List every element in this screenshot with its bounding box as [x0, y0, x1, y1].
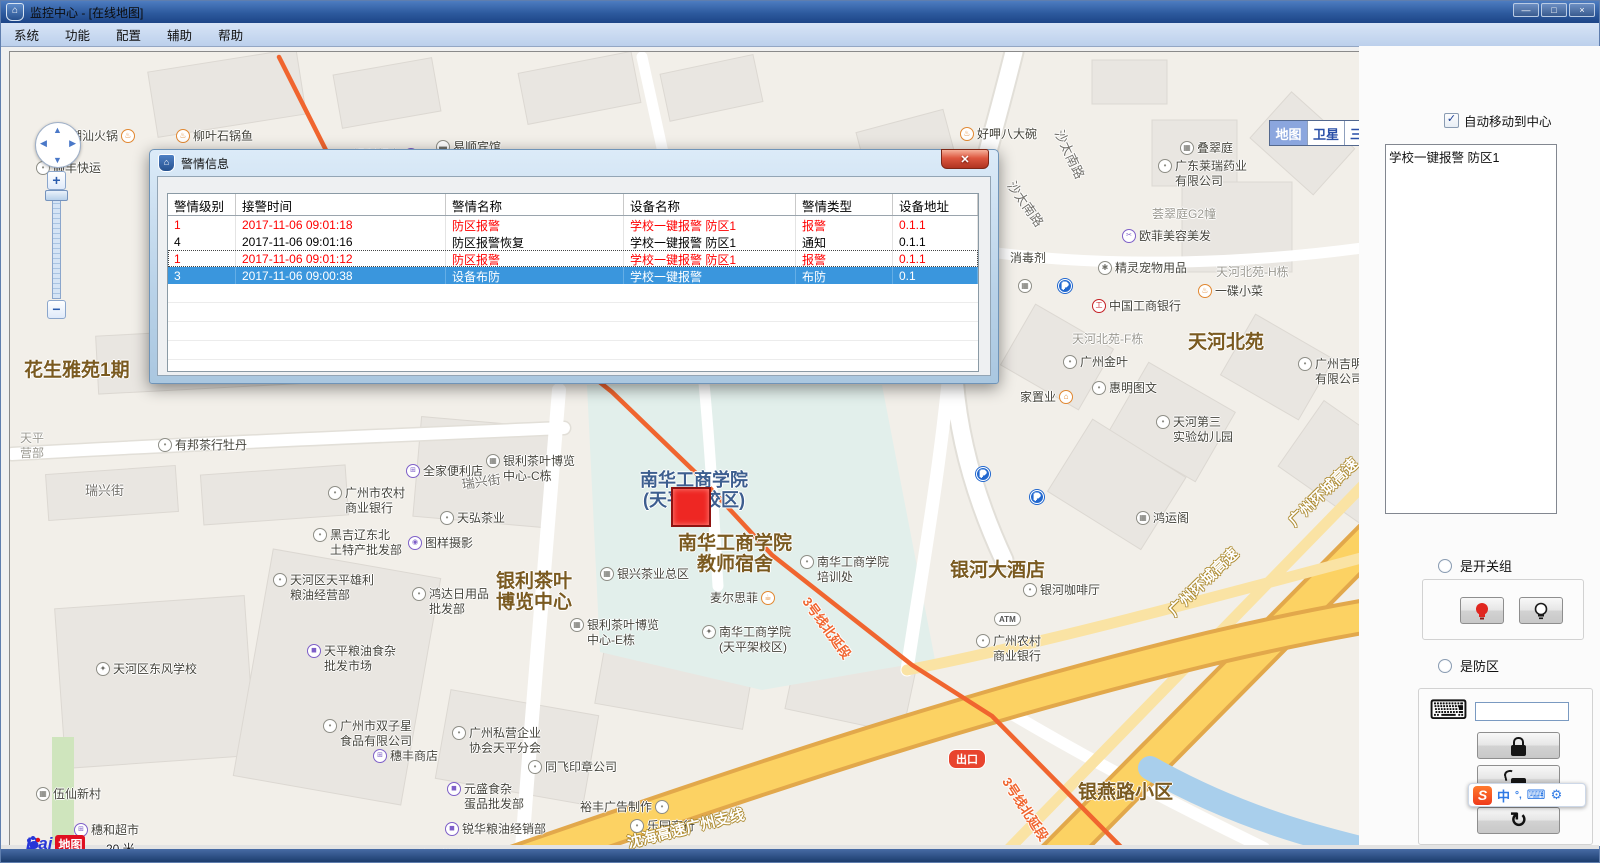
- map-label-text: 广州金叶: [1080, 355, 1128, 370]
- dot-poi-icon: •: [1063, 355, 1077, 369]
- table-empty-row: [168, 341, 978, 360]
- app-window: ⌂ 监控中心 - [在线地图] — □ × 系统功能配置辅助帮助: [0, 0, 1600, 863]
- pan-up-icon[interactable]: ▲: [53, 125, 62, 135]
- map-label-text: 南华工商学院培训处: [817, 555, 889, 585]
- bag-poi-icon: ◼: [445, 822, 459, 836]
- dialog-titlebar[interactable]: ⌂ 警情信息: [150, 150, 998, 176]
- table-cell: 通知: [796, 233, 893, 250]
- ime-keyboard-icon[interactable]: ⌨: [1527, 787, 1546, 803]
- bld-poi-icon: ▦: [1180, 141, 1194, 155]
- map-label-text: 广州市双子星食品有限公司: [340, 719, 412, 749]
- map-label-text: 天平粮油食杂批发市场: [324, 644, 396, 674]
- alarm-table[interactable]: 警情级别接警时间警情名称设备名称警情类型设备地址12017-11-06 09:0…: [167, 193, 979, 372]
- map-label: ▦银兴茶业总区: [600, 567, 689, 582]
- zone-label: 是防区: [1460, 656, 1499, 675]
- map-label: •同飞印章公司: [528, 760, 617, 775]
- map-label-text: 鸿达日用品批发部: [429, 587, 489, 617]
- map-label: •有邦茶行牡丹: [158, 438, 247, 453]
- alarm-info-dialog: ⌂ 警情信息 ✕ 警情级别接警时间警情名称设备名称警情类型设备地址12017-1…: [149, 149, 999, 384]
- table-empty-row: [168, 303, 978, 322]
- map-label-text: 天平营部: [20, 431, 44, 461]
- map-label: 瑞兴街: [85, 483, 124, 499]
- map-label-text: 银利茶叶博览中心: [496, 572, 572, 614]
- dot-poi-icon: •: [412, 587, 426, 601]
- cart-poi-icon: ⊞: [373, 749, 387, 763]
- camera-poi-icon: ◉: [408, 536, 422, 550]
- ime-punct-toggle[interactable]: °,: [1515, 790, 1522, 801]
- window-title: 监控中心 - [在线地图]: [30, 4, 143, 21]
- map-label: 消毒剂: [1010, 251, 1046, 266]
- dialog-title: 警情信息: [181, 155, 229, 172]
- bag-poi-icon: ◼: [447, 782, 461, 796]
- map-label: ♨一碟小菜: [1198, 284, 1263, 299]
- map-label-text: 惠明图文: [1109, 381, 1157, 396]
- map-poi-icon: P: [1058, 279, 1072, 293]
- reset-button[interactable]: ↻: [1477, 807, 1560, 834]
- map-label: •广州农村商业银行: [976, 634, 1041, 664]
- map-label-text: 广州市农村商业银行: [345, 486, 405, 516]
- map-label: ⊞全家便利店: [406, 464, 483, 479]
- map-label-text: 天河区天平雄利粮油经营部: [290, 573, 374, 603]
- dot-poi-icon: •: [528, 760, 542, 774]
- dot-poi-icon: •: [158, 438, 172, 452]
- map-label: •黑吉辽东北土特产批发部: [313, 528, 402, 558]
- reset-icon: ↻: [1510, 812, 1528, 830]
- map-label-text: 瑞兴街: [85, 483, 124, 499]
- map-label: •广州私营企业协会天平分会: [452, 726, 541, 756]
- map-label: 南华工商学院教师宿舍: [678, 534, 792, 576]
- table-cell: 2017-11-06 09:01:12: [236, 250, 446, 267]
- light-off-button[interactable]: [1519, 597, 1563, 624]
- map-label-text: 银河大酒店: [950, 561, 1045, 582]
- map-label: ▦伍仙新村: [36, 787, 101, 802]
- dialog-close-button[interactable]: ✕: [941, 149, 989, 169]
- map-label-text: 消毒剂: [1010, 251, 1046, 266]
- map-label-text: 广州吉明电子科技有限公司: [1315, 357, 1360, 387]
- map-label-text: 伍仙新村: [53, 787, 101, 802]
- alarm-location-marker[interactable]: [671, 487, 711, 527]
- map-label-text: 穗丰商店: [390, 749, 438, 764]
- map-label: ✂欧菲美容美发: [1122, 229, 1211, 244]
- baidu-paw-icon: [26, 834, 42, 850]
- menu-item-功能[interactable]: 功能: [52, 22, 103, 47]
- map-label-text: 天河北苑-H栋: [1216, 265, 1289, 280]
- map-label: •广州市双子星食品有限公司: [323, 719, 412, 749]
- map-label: •南华工商学院培训处: [800, 555, 889, 585]
- map-label-text: 花生雅苑1期: [24, 361, 130, 382]
- soft-keyboard-icon[interactable]: ⌨: [1429, 695, 1468, 726]
- p-poi-icon: P: [1058, 279, 1072, 293]
- device-list-item[interactable]: 学校一键报警 防区1: [1386, 145, 1556, 168]
- map-poi-icon: ▦: [1018, 279, 1032, 293]
- menu-item-配置[interactable]: 配置: [103, 22, 154, 47]
- outline-bulb-icon: [1532, 601, 1550, 621]
- zoom-slider-track[interactable]: [52, 193, 61, 299]
- p-poi-icon: P: [976, 467, 990, 481]
- column-header-警情级别: 警情级别: [168, 194, 236, 215]
- dot-poi-icon: •: [440, 511, 454, 525]
- bld-poi-icon: ▦: [36, 787, 50, 801]
- map-label: •广州市农村商业银行: [328, 486, 405, 516]
- table-cell: 防区报警恢复: [446, 233, 624, 250]
- window-titlebar[interactable]: ⌂ 监控中心 - [在线地图] — □ ×: [1, 1, 1599, 23]
- table-cell: 0.1.1: [893, 216, 978, 233]
- dot-poi-icon: •: [273, 573, 287, 587]
- cut-poi-icon: ✂: [1122, 229, 1136, 243]
- table-cell: 3: [168, 267, 236, 284]
- zoom-in-button[interactable]: +: [47, 171, 66, 190]
- map-label: •广州吉明电子科技有限公司: [1298, 357, 1360, 387]
- table-empty-row: [168, 322, 978, 341]
- table-empty-row: [168, 360, 978, 372]
- map-label-text: 图样摄影: [425, 536, 473, 551]
- map-label-text: 银利茶叶博览中心-E栋: [587, 618, 659, 648]
- map-label: •天河区天平雄利粮油经营部: [273, 573, 374, 603]
- map-label-text: 中国工商银行: [1109, 299, 1181, 314]
- dialog-shield-icon: ⌂: [158, 154, 175, 172]
- bld-poi-icon: ▦: [600, 567, 614, 581]
- table-cell: 布防: [796, 267, 893, 284]
- table-cell: 2017-11-06 09:01:18: [236, 216, 446, 233]
- map-label-text: 广州私营企业协会天平分会: [469, 726, 541, 756]
- lock-icon: [1511, 745, 1526, 756]
- icbc-poi-icon: 工: [1092, 299, 1106, 313]
- bld-poi-icon: ▦: [570, 618, 584, 632]
- zoom-out-button[interactable]: −: [47, 300, 66, 319]
- cart-poi-icon: ⊞: [406, 464, 420, 478]
- map-label-text: 有邦茶行牡丹: [175, 438, 247, 453]
- table-cell: 学校一键报警 防区1: [624, 233, 796, 250]
- bld-poi-icon: ▦: [1018, 279, 1032, 293]
- map-label-text: 欧菲美容美发: [1139, 229, 1211, 244]
- table-row[interactable]: 12017-11-06 09:01:12防区报警学校一键报警 防区1报警0.1.…: [168, 250, 978, 267]
- map-label: •广州金叶: [1063, 355, 1128, 370]
- map-label-text: 天河区东风学校: [113, 662, 197, 677]
- menu-item-系统[interactable]: 系统: [1, 22, 52, 47]
- map-label-text: 叠翠庭: [1197, 141, 1233, 156]
- map-label: ◼元盛食杂蛋品批发部: [447, 782, 524, 812]
- map-label: 天河北苑: [1188, 333, 1264, 354]
- table-cell: 2017-11-06 09:01:16: [236, 233, 446, 250]
- map-poi-icon: P: [976, 467, 990, 481]
- map-label: 天河北苑-F栋: [1072, 332, 1143, 347]
- dot-poi-icon: •: [1023, 583, 1037, 597]
- atm-badge: ATM: [994, 612, 1021, 626]
- table-cell: 0.1: [893, 267, 978, 284]
- map-label-text: 南华工商学院教师宿舍: [678, 534, 792, 576]
- map-label-text: 黑吉辽东北土特产批发部: [330, 528, 402, 558]
- table-cell: 学校一键报警 防区1: [624, 216, 796, 233]
- map-label-text: 麦尔思菲: [710, 591, 758, 606]
- dot-poi-icon: •: [1156, 415, 1170, 429]
- table-cell: 学校一键报警 防区1: [624, 250, 796, 267]
- table-cell: 4: [168, 233, 236, 250]
- map-scale-label: 20 米: [106, 840, 135, 850]
- dot-poi-icon: •: [800, 555, 814, 569]
- ime-lang-toggle[interactable]: 中: [1497, 786, 1510, 805]
- map-label-text: 天河第三实验幼儿园: [1173, 415, 1233, 445]
- status-bar: [1, 849, 1599, 862]
- view-button-地图[interactable]: 地图: [1270, 121, 1307, 145]
- map-label-text: 广州农村商业银行: [993, 634, 1041, 664]
- map-label: ✦南华工商学院(天平架校区): [702, 625, 791, 655]
- menu-item-辅助[interactable]: 辅助: [154, 22, 205, 47]
- map-label: •银河咖啡厅: [1023, 583, 1100, 598]
- column-header-设备名称: 设备名称: [624, 194, 796, 215]
- map-label: ▦叠翠庭: [1180, 141, 1233, 156]
- bld-poi-icon: ▦: [1136, 511, 1150, 525]
- map-label-text: 天河北苑-F栋: [1072, 332, 1143, 347]
- zone-radio[interactable]: [1438, 659, 1452, 673]
- map-label: 银河大酒店: [950, 561, 1045, 582]
- app-icon: ⌂: [6, 3, 24, 21]
- map-label: 天河北苑-H栋: [1216, 265, 1289, 280]
- map-pan-control[interactable]: ▲ ▼ ◀ ▶: [35, 122, 81, 168]
- map-label: ✱精灵宠物用品: [1098, 261, 1187, 276]
- food-poi-icon: ♨: [176, 129, 190, 143]
- table-cell: 0.1.1: [893, 233, 978, 250]
- p-poi-icon: P: [1030, 490, 1044, 504]
- coffee-poi-icon: ☕: [761, 591, 775, 605]
- table-cell: 防区报警: [446, 216, 624, 233]
- food-poi-icon: ♨: [960, 127, 974, 141]
- minimize-button[interactable]: —: [1513, 3, 1539, 17]
- map-label: ♨好呷八大碗: [960, 127, 1037, 142]
- dot-poi-icon: •: [655, 800, 669, 814]
- school-poi-icon: ✦: [96, 662, 110, 676]
- red-bulb-icon: [1473, 601, 1491, 621]
- dot-poi-icon: •: [1298, 357, 1312, 371]
- map-label-text: 荟翠庭G2幢: [1152, 207, 1216, 222]
- map-label: ◼天平粮油食杂批发市场: [307, 644, 396, 674]
- map-label: 裕丰广告制作•: [580, 800, 669, 815]
- table-row[interactable]: 32017-11-06 09:00:38设备布防学校一键报警布防0.1: [168, 267, 978, 284]
- table-cell: 1: [168, 216, 236, 233]
- map-label-text: 好呷八大碗: [977, 127, 1037, 142]
- bag-poi-icon: ◼: [307, 644, 321, 658]
- map-poi-icon: P: [1030, 490, 1044, 504]
- table-cell: 学校一键报警: [624, 267, 796, 284]
- map-label: 麦尔思菲☕: [710, 591, 775, 606]
- map-label: 天平营部: [20, 431, 44, 461]
- pan-left-icon[interactable]: ◀: [40, 138, 47, 149]
- table-cell: 2017-11-06 09:00:38: [236, 267, 446, 284]
- column-header-接警时间: 接警时间: [236, 194, 446, 215]
- map-label-text: 天弘茶业: [457, 511, 505, 526]
- map-view-switcher: 地图卫星三维: [1269, 120, 1360, 146]
- map-label: 银利茶叶博览中心: [496, 572, 572, 614]
- map-label-text: 元盛食杂蛋品批发部: [464, 782, 524, 812]
- map-label-text: 家置业: [1020, 390, 1056, 405]
- maximize-button[interactable]: □: [1541, 3, 1567, 17]
- menu-bar: 系统功能配置辅助帮助: [1, 23, 1599, 47]
- table-cell: 报警: [796, 250, 893, 267]
- dot-poi-icon: •: [313, 528, 327, 542]
- pan-right-icon[interactable]: ▶: [69, 138, 76, 149]
- column-header-警情类型: 警情类型: [796, 194, 893, 215]
- table-cell: 报警: [796, 216, 893, 233]
- close-button[interactable]: ×: [1569, 3, 1595, 17]
- table-row[interactable]: 12017-11-06 09:01:18防区报警学校一键报警 防区1报警0.1.…: [168, 216, 978, 233]
- baidu-logo: Bai 地图: [26, 834, 85, 850]
- sogou-logo-icon[interactable]: S: [1473, 786, 1492, 805]
- dot-poi-icon: •: [328, 486, 342, 500]
- map-label-text: 同飞印章公司: [545, 760, 617, 775]
- map-label-text: 鸿运阁: [1153, 511, 1189, 526]
- pan-down-icon[interactable]: ▼: [53, 155, 62, 165]
- map-label: 花生雅苑1期: [24, 361, 130, 382]
- map-label-text: 全家便利店: [423, 464, 483, 479]
- light-on-button[interactable]: [1460, 597, 1504, 624]
- map-label-text: 锐华粮油经销部: [462, 822, 546, 837]
- map-label: 家置业⌂: [1020, 390, 1073, 405]
- sogou-ime-bar: S 中 °, ⌨ ⚙: [1468, 783, 1586, 807]
- map-label-text: 穗和超市: [91, 823, 139, 838]
- dot-poi-icon: •: [976, 634, 990, 648]
- map-label: ♨柳叶石锅鱼: [176, 129, 253, 144]
- map-label: •天弘茶业: [440, 511, 505, 526]
- view-button-卫星[interactable]: 卫星: [1307, 121, 1344, 145]
- table-empty-row: [168, 284, 978, 303]
- map-label: ◉图样摄影: [408, 536, 473, 551]
- auto-center-checkbox[interactable]: ✓: [1444, 113, 1459, 128]
- auto-center-label: 自动移动到中心: [1464, 111, 1552, 130]
- table-header-row: 警情级别接警时间警情名称设备名称警情类型设备地址: [168, 194, 978, 216]
- table-cell: 防区报警: [446, 250, 624, 267]
- map-label: 工中国工商银行: [1092, 299, 1181, 314]
- map-label: 荟翠庭G2幢: [1152, 207, 1216, 222]
- zone-password-input[interactable]: [1475, 702, 1569, 721]
- map-label-text: 南华工商学院(天平架校区): [719, 625, 791, 655]
- map-label-text: 天河北苑: [1188, 333, 1264, 354]
- map-label-text: 银河咖啡厅: [1040, 583, 1100, 598]
- map-label: ✦天河区东风学校: [96, 662, 197, 677]
- table-cell: 设备布防: [446, 267, 624, 284]
- dot-poi-icon: •: [1092, 381, 1106, 395]
- dot-poi-icon: •: [452, 726, 466, 740]
- map-label: ▦银利茶叶博览中心-C栋: [486, 454, 575, 484]
- dialog-client-area: 警情级别接警时间警情名称设备名称警情类型设备地址12017-11-06 09:0…: [157, 176, 991, 376]
- map-label: ▦银利茶叶博览中心-E栋: [570, 618, 659, 648]
- map-label-text: 一碟小菜: [1215, 284, 1263, 299]
- food-poi-icon: ♨: [1198, 284, 1212, 298]
- menu-item-帮助[interactable]: 帮助: [205, 22, 256, 47]
- map-label: •惠明图文: [1092, 381, 1157, 396]
- map-label-text: 精灵宠物用品: [1115, 261, 1187, 276]
- map-label-text: 银燕路小区: [1078, 783, 1173, 804]
- table-row[interactable]: 42017-11-06 09:01:16防区报警恢复学校一键报警 防区1通知0.…: [168, 233, 978, 250]
- map-label-text: 柳叶石锅鱼: [193, 129, 253, 144]
- zoom-slider-handle[interactable]: [45, 190, 68, 201]
- food-poi-icon: ♨: [121, 129, 135, 143]
- ime-settings-icon[interactable]: ⚙: [1551, 787, 1563, 803]
- column-header-设备地址: 设备地址: [893, 194, 978, 215]
- school-poi-icon: ✦: [702, 625, 716, 639]
- dot-poi-icon: •: [1158, 159, 1172, 173]
- map-label: 银燕路小区: [1078, 783, 1173, 804]
- map-label: ▦鸿运阁: [1136, 511, 1189, 526]
- map-label-text: 裕丰广告制作: [580, 800, 652, 815]
- map-label: ◼锐华粮油经销部: [445, 822, 546, 837]
- switch-group-radio[interactable]: [1438, 559, 1452, 573]
- home-poi-icon: ⌂: [1059, 390, 1073, 404]
- map-label: •鸿达日用品批发部: [412, 587, 489, 617]
- paw-poi-icon: ✱: [1098, 261, 1112, 275]
- map-label-text: 广东莱瑞药业有限公司: [1175, 159, 1247, 189]
- bld-poi-icon: ▦: [486, 454, 500, 468]
- table-cell: 1: [168, 250, 236, 267]
- device-listbox[interactable]: 学校一键报警 防区1: [1385, 144, 1557, 514]
- table-cell: 0.1.1: [893, 250, 978, 267]
- baidu-logo-map-text: 地图: [55, 835, 85, 851]
- dot-poi-icon: •: [323, 719, 337, 733]
- map-label: ⊞穗丰商店: [373, 749, 438, 764]
- view-button-三维[interactable]: 三维: [1344, 121, 1360, 145]
- column-header-警情名称: 警情名称: [446, 194, 624, 215]
- arm-button[interactable]: [1477, 732, 1560, 759]
- map-label-text: 银利茶叶博览中心-C栋: [503, 454, 575, 484]
- map-label: •广东莱瑞药业有限公司: [1158, 159, 1247, 189]
- highway-exit-badge: 出口: [948, 749, 986, 769]
- switch-group-label: 是开关组: [1460, 556, 1512, 575]
- map-label: •天河第三实验幼儿园: [1156, 415, 1233, 445]
